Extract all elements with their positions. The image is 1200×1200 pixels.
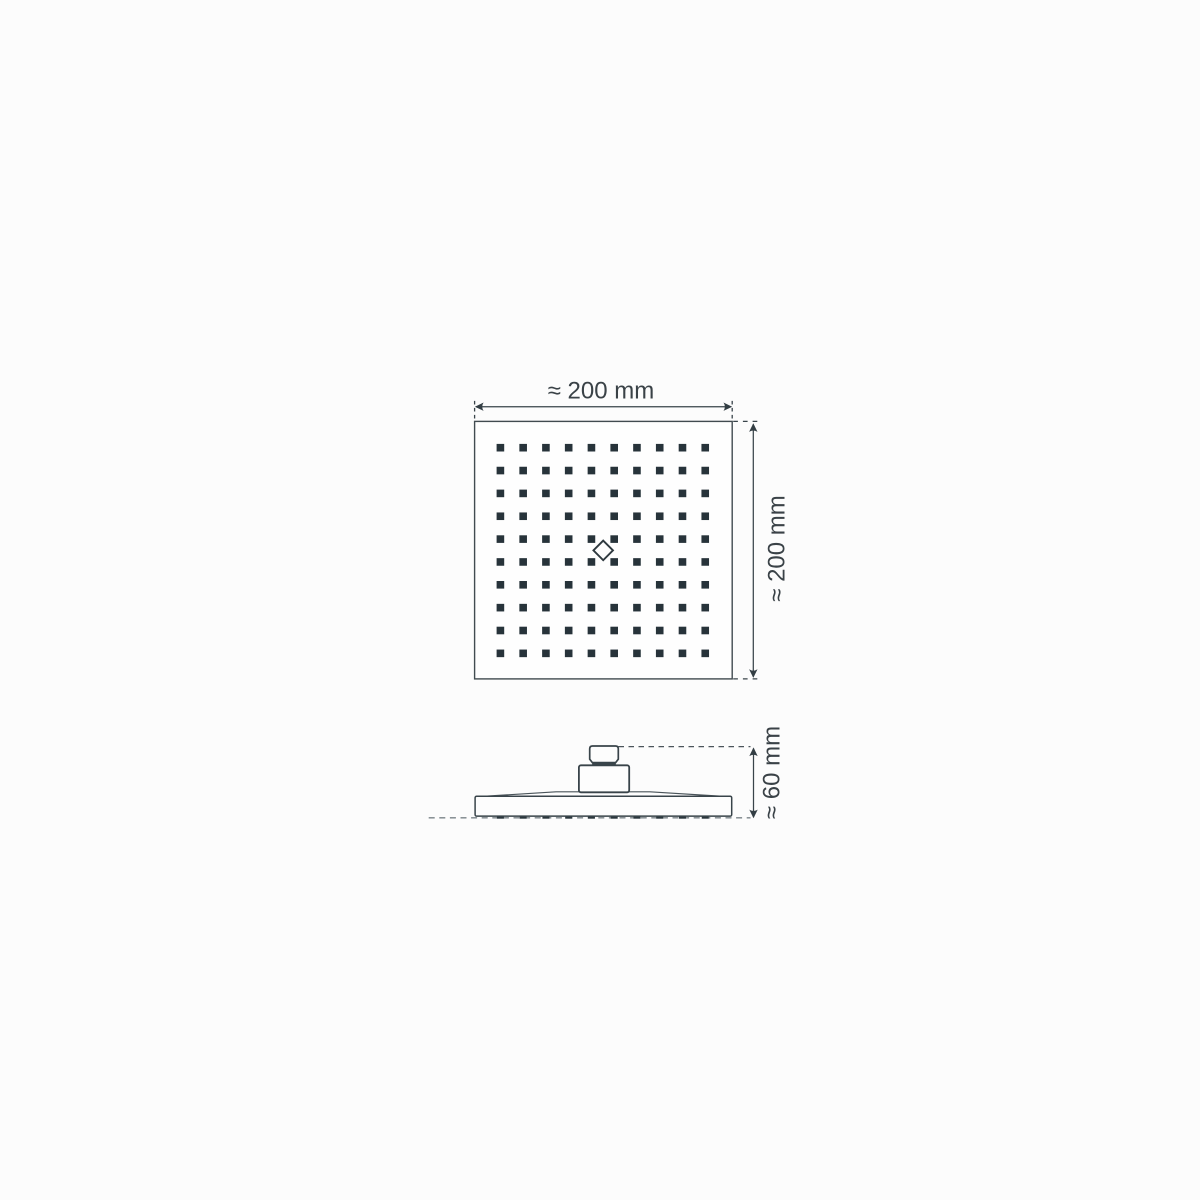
svg-text:≈ 200 mm: ≈ 200 mm — [764, 495, 791, 602]
svg-text:≈ 200 mm: ≈ 200 mm — [548, 378, 655, 405]
svg-text:≈ 60 mm: ≈ 60 mm — [759, 726, 786, 819]
